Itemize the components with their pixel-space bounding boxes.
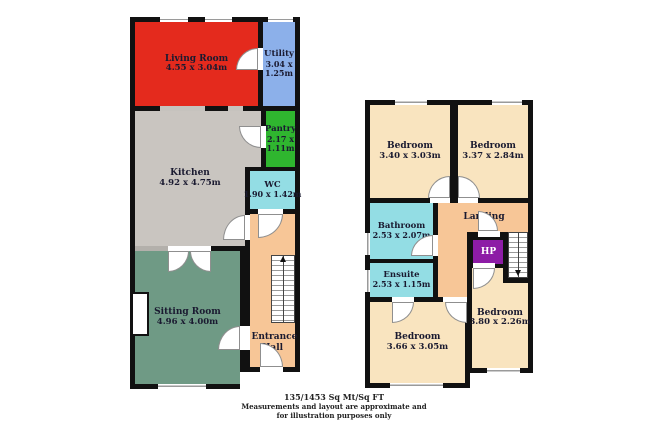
- stairs-up-arrow: [280, 256, 286, 262]
- room-pantry: Pantry 2.17 x 1.11m: [266, 111, 295, 167]
- hp-label: HP: [481, 247, 496, 257]
- door-gap: [478, 231, 500, 237]
- footer: 135/1453 Sq Mt/Sq FT Measurements and la…: [0, 392, 668, 420]
- room-dims: 3.04 x 1.25m: [263, 60, 295, 78]
- wall-opening: [228, 106, 243, 111]
- window: [390, 383, 443, 388]
- door-gap: [458, 198, 478, 203]
- window: [487, 368, 520, 373]
- door-gap: [433, 235, 438, 256]
- room-dims: 3.80 x 2.26m: [469, 318, 530, 328]
- wall-opening: [160, 106, 205, 111]
- stairwell-wall-bottom: [503, 278, 528, 283]
- room-dims: 2.17 x 1.11m: [266, 135, 295, 153]
- door-gap: [430, 198, 450, 203]
- room-dims: 1.90 x 1.42m: [244, 190, 302, 199]
- footer-disclaimer-line1: Measurements and layout are approximate …: [0, 402, 668, 411]
- window: [492, 100, 522, 105]
- door-gap: [258, 48, 263, 70]
- window: [158, 384, 206, 389]
- landing-corridor: [438, 232, 467, 297]
- room-utility: Utility 3.04 x 1.25m: [263, 22, 295, 106]
- fireplace-bay: [131, 292, 149, 336]
- window: [365, 233, 370, 255]
- door-gap: [245, 215, 250, 240]
- room-dims: 3.66 x 3.05m: [387, 343, 448, 353]
- room-dims: 2.53 x 1.15m: [373, 280, 431, 289]
- room-dims: 4.96 x 4.00m: [157, 318, 218, 328]
- footer-disclaimer-line2: for illustration purposes only: [0, 411, 668, 420]
- window: [365, 270, 370, 292]
- stairs-down-arrow: [515, 270, 521, 276]
- window: [395, 100, 427, 105]
- room-dims: 3.37 x 2.84m: [462, 152, 523, 162]
- wall-opening: [135, 246, 168, 251]
- stairs-ground: [271, 255, 295, 323]
- door-gap: [261, 126, 266, 148]
- room-dims: 4.92 x 4.75m: [159, 179, 220, 189]
- room-dims: 3.40 x 3.03m: [379, 152, 440, 162]
- room-dims: 4.55 x 3.04m: [166, 64, 227, 74]
- door-gap: [240, 326, 250, 350]
- window: [160, 17, 188, 22]
- hp-cupboard: HP: [473, 240, 504, 264]
- window: [205, 17, 232, 22]
- footer-area-text: 135/1453 Sq Mt/Sq FT: [0, 392, 668, 402]
- window: [268, 17, 293, 22]
- room-wc: WC 1.90 x 1.42m: [250, 171, 295, 209]
- front-door-gap: [260, 367, 283, 372]
- room-sitting: Sitting Room 4.96 x 4.00m: [135, 251, 240, 384]
- room-ensuite: Ensuite 2.53 x 1.15m: [370, 263, 433, 297]
